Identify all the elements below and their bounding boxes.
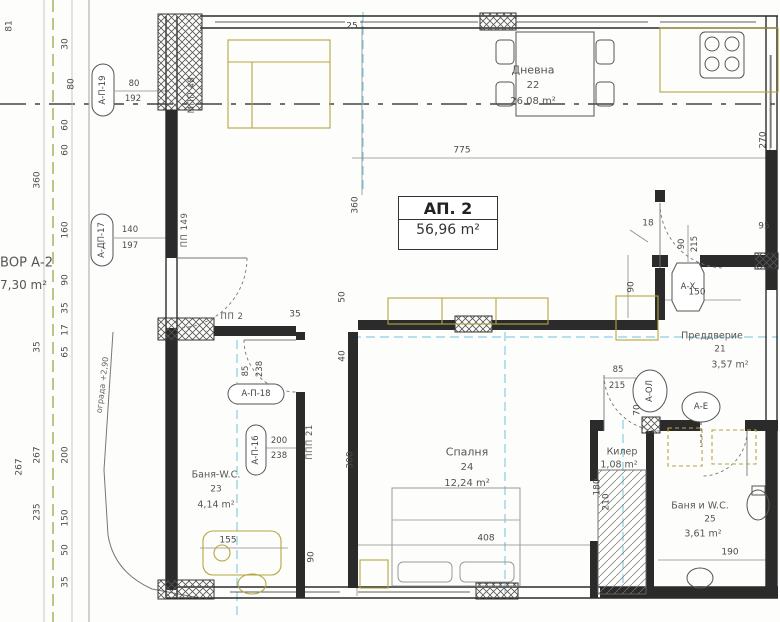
dim-360-outer: 360: [34, 171, 43, 188]
corridor-area: 7,30 m²: [0, 279, 47, 291]
room-area-bedroom: 12,24 m²: [444, 479, 490, 489]
callout-a-p-19-width: 80: [129, 80, 140, 89]
room-name-bathroom-left: Баня-W.C.: [192, 470, 241, 480]
callout-a-p-18-width: 85: [242, 366, 251, 377]
apartment-title: АП. 2: [399, 197, 497, 220]
callout-a-dp-17-width: 140: [122, 226, 138, 235]
pillow: [398, 562, 452, 582]
dim-155: 155: [219, 537, 236, 546]
chair: [596, 82, 614, 106]
room-number-bathroom-left: 23: [210, 486, 221, 495]
dim-60a: 60: [62, 119, 71, 130]
callout-shapes: [91, 64, 720, 475]
dim-210-closet: 210: [603, 493, 612, 510]
bathtub: [203, 531, 281, 575]
dim-35b: 35: [62, 576, 71, 587]
room-area-bathroom-right: 3,61 m²: [684, 529, 721, 539]
wall-code-mpp48: МПП 48: [188, 77, 197, 114]
chair: [596, 40, 614, 64]
room-number-bedroom: 24: [461, 463, 474, 473]
dim-80: 80: [68, 78, 77, 89]
kitchen-counter: [660, 28, 778, 92]
callout-a-ol-width: 85: [613, 366, 624, 375]
dim-270-right: 270: [760, 131, 769, 148]
dim-408-bedroom: 408: [477, 535, 494, 544]
room-name-hall: Преддверие: [681, 331, 743, 341]
dim-65: 65: [62, 346, 71, 357]
dim-30: 30: [62, 38, 71, 49]
dim-50: 50: [62, 544, 71, 555]
dim-70: 70: [634, 404, 643, 415]
dim-25-top: 25: [346, 23, 357, 32]
armchair: [616, 296, 658, 340]
apartment-label-box: АП. 2 56,96 m²: [398, 196, 498, 250]
nightstand: [360, 560, 388, 588]
dim-35a: 35: [62, 302, 71, 313]
callout-a-ol-height: 215: [609, 382, 625, 391]
callout-a-p-16-height: 238: [271, 452, 287, 461]
dim-267a: 267: [34, 446, 43, 463]
callout-a-p-18: А-П-18: [241, 390, 270, 399]
room-number-living: 22: [527, 81, 540, 91]
callout-a-x-height: 215: [691, 236, 700, 252]
room-name-bedroom: Спалня: [446, 447, 488, 458]
dim-90-hall: 90: [628, 281, 637, 292]
wall-code-pp149: ПП 149: [181, 213, 190, 248]
closet-hatch: [598, 470, 646, 594]
callout-a-e: А-Е: [694, 403, 708, 412]
dim-235: 235: [34, 503, 43, 520]
callout-a-x-width: 90: [678, 239, 687, 250]
dim-90-left: 90: [62, 274, 71, 285]
callout-a-p-19-height: 192: [125, 95, 141, 104]
bath-fixture-box: [712, 430, 756, 464]
room-name-bathroom-right: Баня и W.C.: [671, 501, 728, 511]
dim-150-left: 150: [62, 509, 71, 526]
dim-775: 775: [453, 147, 470, 156]
dim-18: 18: [642, 220, 653, 229]
room-area-closet: 1,08 m²: [600, 460, 637, 470]
room-area-hall: 3,57 m²: [711, 360, 748, 370]
callout-a-dp-17: А-ДП-17: [98, 222, 107, 258]
dim-35-pp2: 35: [289, 311, 300, 320]
callout-a-ol: А-ОЛ: [646, 380, 655, 402]
dim-40: 40: [339, 350, 348, 361]
dim-50-v: 50: [339, 291, 348, 302]
dim-90-bath: 90: [308, 551, 317, 562]
dim-190: 190: [721, 549, 738, 558]
room-number-bathroom-right: 25: [704, 516, 715, 525]
floorplan-drawing: [0, 0, 780, 622]
callout-a-p-18-height: 238: [256, 361, 265, 377]
washing-machine: [668, 428, 702, 466]
room-area-bathroom-left: 4,14 m²: [197, 500, 234, 510]
dim-35-outer: 35: [34, 341, 43, 352]
room-number-hall: 21: [714, 346, 725, 355]
callout-a-p-16-width: 200: [271, 437, 287, 446]
washbasin-left: [238, 574, 266, 594]
dim-150-hall: 150: [688, 289, 705, 298]
washbasin-right: [687, 568, 713, 588]
corridor-name: ВОР А-2: [0, 257, 53, 270]
callout-a-dp-17-height: 197: [122, 242, 138, 251]
dim-267b: 267: [16, 458, 25, 475]
floor-plan: АП. 2 56,96 m² Дневна 22 26,08 m² Спалня…: [0, 0, 780, 622]
dim-17: 17: [62, 324, 71, 335]
pillow: [460, 562, 514, 582]
callout-a-p-19: А-П-19: [99, 75, 108, 104]
bed: [392, 488, 520, 586]
room-area-living: 26,08 m²: [510, 97, 556, 107]
wall-code-ppp21: ППП 21: [306, 424, 315, 460]
dim-160: 160: [62, 221, 71, 238]
dim-60b: 60: [62, 144, 71, 155]
dim-300-bedroom: 300: [347, 451, 356, 468]
callout-a-p-16: А-П-16: [252, 435, 261, 464]
dim-95: 95: [758, 223, 769, 232]
room-name-living: Дневна: [512, 65, 555, 76]
apartment-area: 56,96 m²: [399, 220, 497, 238]
corner-sofa: [228, 40, 330, 128]
dim-360-living: 360: [352, 196, 361, 213]
room-name-closet: Килер: [607, 447, 638, 457]
chair: [496, 40, 514, 64]
dim-81: 81: [6, 20, 15, 31]
dim-200: 200: [62, 446, 71, 463]
wall-code-pp2: ПП 2: [221, 313, 244, 322]
